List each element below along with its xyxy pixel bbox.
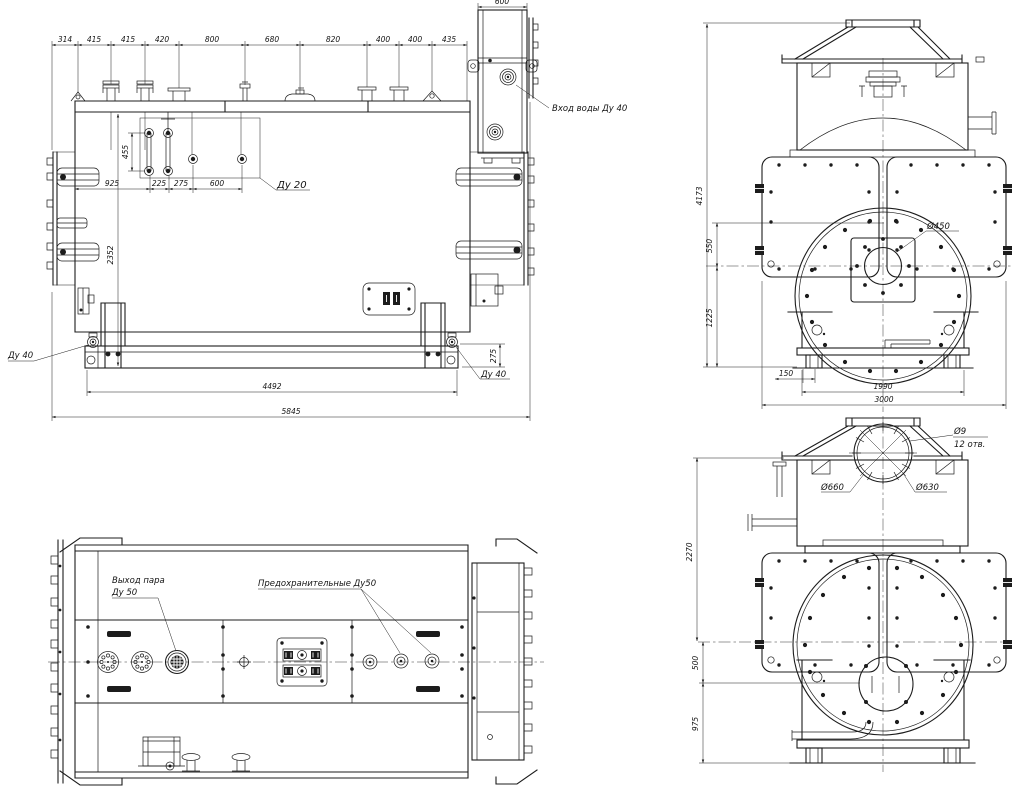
front-tube-plate: Ø450 [795,208,971,384]
dim-600-econ: 600 [495,0,510,6]
flat-flange [168,88,190,101]
dim-925: 925 [105,179,120,188]
rear-centerlines [698,416,1012,772]
economizer-top [472,539,537,784]
dim-275-skid: 275 [489,349,498,364]
panel-clamps-front [755,184,1012,255]
dim-4173: 4173 [695,186,704,205]
dim-1990: 1990 [873,382,892,391]
side-view: 314 415 415 420 800 680 820 400 400 435 [7,0,627,421]
access-panel-side [363,283,415,315]
d450-label: Ø450 [926,221,950,232]
dim-1225: 1225 [705,308,714,327]
front-panels [755,157,1012,277]
shell-top-fittings [71,81,441,101]
dim-3000: 3000 [874,395,893,404]
water-inlet-label: Вход воды Ду 40 [552,104,627,114]
steam-outlet-flange: Выход пара Ду 50 [98,576,189,674]
holes-count-label: 12 отв. [954,440,985,450]
lifting-lug-right [423,91,441,101]
extension-lines [52,41,467,150]
manhole-dome [285,88,315,101]
drain-elbow-rear [792,722,873,741]
du20-nozzle-group: 455 925 225 275 600 Ду 20 [75,112,310,193]
dim-500: 500 [691,656,700,671]
pipe-flange-2 [390,87,408,101]
dim-275: 275 [174,179,189,188]
rear-pedestal [790,660,975,763]
center-fittings: Предохранительные Ду50 [107,579,440,692]
drain-elbow-front [885,340,930,348]
rear-upper-box [748,460,968,553]
front-centerlines [706,58,1012,412]
front-plate-edge-side [47,152,99,314]
dim-415a: 415 [87,35,102,44]
dim-680: 680 [265,35,280,44]
d660-label: Ø660 [820,482,844,493]
stud-flange-2 [137,81,153,101]
rear-side-pipes [748,466,797,531]
skid-and-supports: Ду 40 Ду 40 [7,303,510,380]
dim-455: 455 [121,145,130,160]
bottom-fittings [138,737,250,771]
dim-400b: 400 [408,35,423,44]
dim-420: 420 [155,35,170,44]
du40-valve-rear [447,333,458,348]
du20-label: Ду 20 [276,180,307,191]
safety-valve-flanges [363,654,439,669]
dim-400a: 400 [376,35,391,44]
dim-435: 435 [442,35,457,44]
steam-outlet-leader [112,598,176,651]
lower-flange [487,124,503,140]
du40-valve-front [88,333,99,348]
steam-outlet-label-2: Ду 50 [111,588,137,598]
water-inlet-flange [500,69,516,85]
stud-flange-1 [103,81,119,101]
dim-5845: 5845 [281,407,300,416]
safety-valves-leader [258,589,431,653]
rear-hood: Ø660 Ø630 Ø9 12 отв. [782,418,988,493]
dim-2270: 2270 [685,542,694,561]
front-view: Ø450 4173 550 1225 150 1990 3000 [695,20,1012,412]
rear-dims: 2270 500 975 [685,458,860,763]
d450-leader [897,231,959,252]
dim-150: 150 [779,369,794,378]
dim-600: 600 [210,179,225,188]
d9-label: Ø9 [953,426,966,437]
steam-outlet-label-1: Выход пара [112,576,165,586]
dim-820: 820 [326,35,341,44]
top-view: Выход пара Ду 50 Предохранительные Ду50 [48,538,544,785]
side-pipe-right [968,57,996,134]
d630-label: Ø630 [915,482,939,493]
safety-valves-label: Предохранительные Ду50 [258,579,376,589]
du40-rear-label: Ду 40 [480,370,506,380]
dim-415b: 415 [121,35,136,44]
dim-550: 550 [705,239,714,254]
corner-lugs-right [496,539,537,784]
economizer-side: 600 Вход воды Ду 40 [468,0,627,163]
du40-front-label: Ду 40 [7,351,33,361]
pipe-flange-1 [358,87,376,101]
dim-2352: 2352 [106,245,115,264]
front-hood [782,20,962,77]
rear-plate-edge-side [456,152,534,306]
rear-view: Ø660 Ø630 Ø9 12 отв. [685,416,1012,772]
dim-800: 800 [205,35,220,44]
dim-225: 225 [152,179,167,188]
dim-975: 975 [691,717,700,732]
steam-outlet-du50 [166,651,189,674]
manhole [859,657,913,711]
dim-314: 314 [58,35,73,44]
side-top-dimension-chain: 314 415 415 420 800 680 820 400 400 435 [52,35,467,150]
drawing-canvas: 314 415 415 420 800 680 820 400 400 435 [0,0,1024,804]
boiler-shell-side [53,101,524,332]
front-dims: 4173 550 1225 150 1990 3000 [695,23,1006,409]
front-upper-box [790,57,996,157]
mushroom-vent-1 [182,754,200,772]
mushroom-vent-2 [232,754,250,772]
dim-4492: 4492 [262,382,281,391]
lifting-lug-left [71,92,85,101]
boiler-technical-drawing: 314 415 415 420 800 680 820 400 400 435 [0,0,1024,804]
